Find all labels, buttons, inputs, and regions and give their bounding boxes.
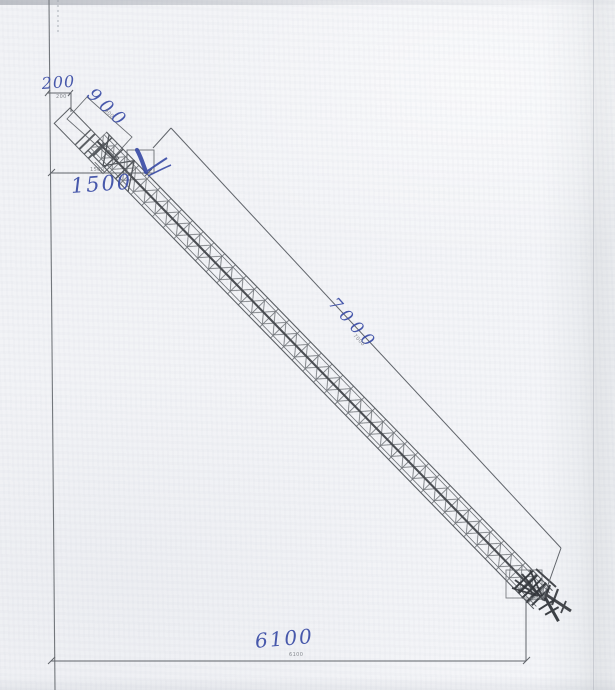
conveyor-truss [87, 131, 571, 628]
dimension-label-1500: 1500 [70, 170, 133, 198]
printed-label-1500: 1500 [90, 167, 104, 173]
dimension-label-6100: 6100 [254, 624, 315, 653]
scanned-drawing-page: 200 900 1500 7000 6100 200 900 1500 7000… [0, 0, 615, 690]
dimension-label-200: 200 [41, 72, 76, 93]
dim-7000-lines [153, 128, 561, 599]
left-extension-line [49, 0, 58, 690]
printed-label-6100: 6100 [289, 652, 303, 658]
printed-label-200: 200 [56, 94, 67, 100]
